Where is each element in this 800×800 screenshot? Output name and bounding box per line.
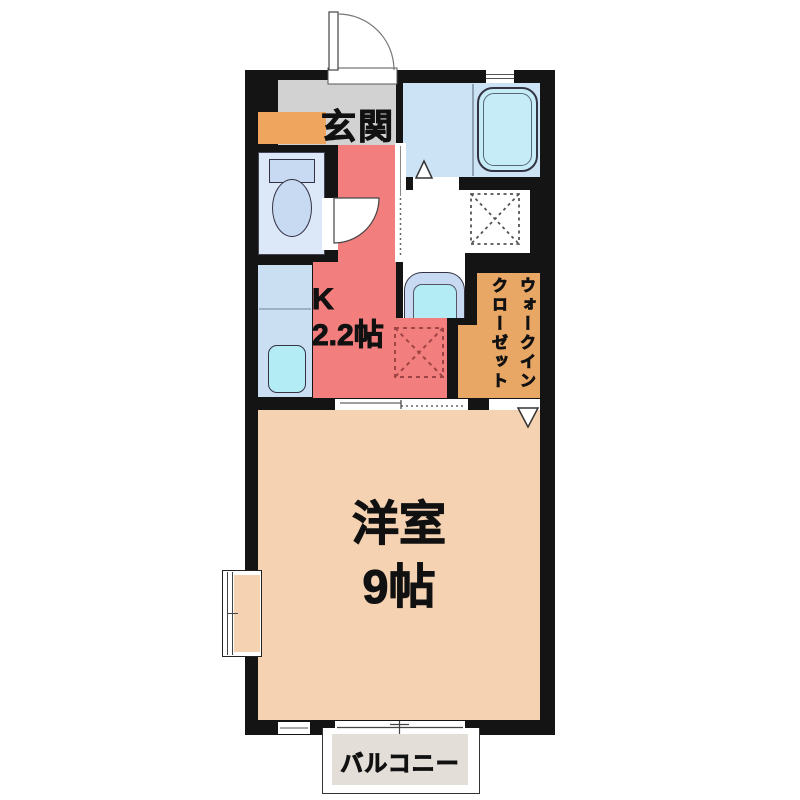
bathtub-inner-rim <box>483 93 532 166</box>
closet-label: ウォークイン クローゼット <box>479 277 539 397</box>
entrance-label: 玄関 <box>303 99 413 150</box>
sliding-door-main-room <box>335 399 468 410</box>
kitchen-sink <box>268 345 306 393</box>
sliding-door-washroom <box>395 143 406 262</box>
balcony-window <box>335 721 465 734</box>
toilet-door-opening <box>322 198 338 250</box>
closet-floor <box>458 325 478 398</box>
toilet-bowl <box>272 179 312 237</box>
floorplan-canvas: バルコニー K 2.2帖 ウォークイン クローゼット 洋室 9帖 玄関 <box>0 0 800 800</box>
bath-door-sill <box>413 177 459 191</box>
western-room-label: 洋室 9帖 <box>299 492 499 619</box>
washbasin-bowl <box>413 284 457 318</box>
bath-window <box>486 70 514 83</box>
bay-window-floor <box>246 579 260 649</box>
kitchen-label: K 2.2帖 <box>312 282 404 354</box>
small-window <box>278 722 310 734</box>
kitchen-floor <box>338 145 396 265</box>
balcony-label: バルコニー <box>332 744 468 778</box>
closet-door-opening <box>489 399 540 410</box>
